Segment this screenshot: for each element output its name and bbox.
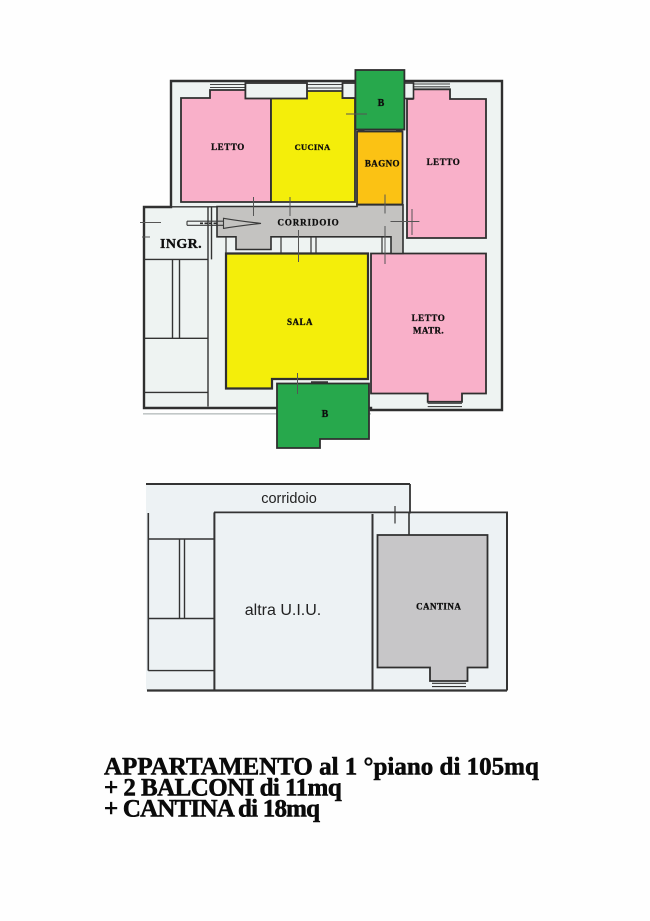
- svg-text:B: B: [378, 98, 385, 109]
- svg-text:LETTO: LETTO: [412, 313, 446, 323]
- svg-text:LETTO: LETTO: [427, 157, 461, 167]
- svg-text:CUCINA: CUCINA: [295, 142, 331, 152]
- svg-text:corridoio: corridoio: [261, 491, 317, 507]
- svg-text:LETTO: LETTO: [211, 142, 245, 152]
- svg-text:BAGNO: BAGNO: [365, 159, 400, 169]
- svg-text:SALA: SALA: [287, 317, 313, 327]
- svg-text:MATR.: MATR.: [413, 326, 444, 336]
- svg-text:altra U.I.U.: altra U.I.U.: [245, 602, 321, 619]
- svg-text:+ CANTINA di 18mq: + CANTINA di 18mq: [104, 796, 320, 823]
- svg-text:CORRIDOIO: CORRIDOIO: [277, 218, 339, 228]
- svg-text:INGR.: INGR.: [160, 237, 202, 252]
- svg-text:CANTINA: CANTINA: [416, 602, 461, 612]
- svg-text:B: B: [322, 409, 329, 420]
